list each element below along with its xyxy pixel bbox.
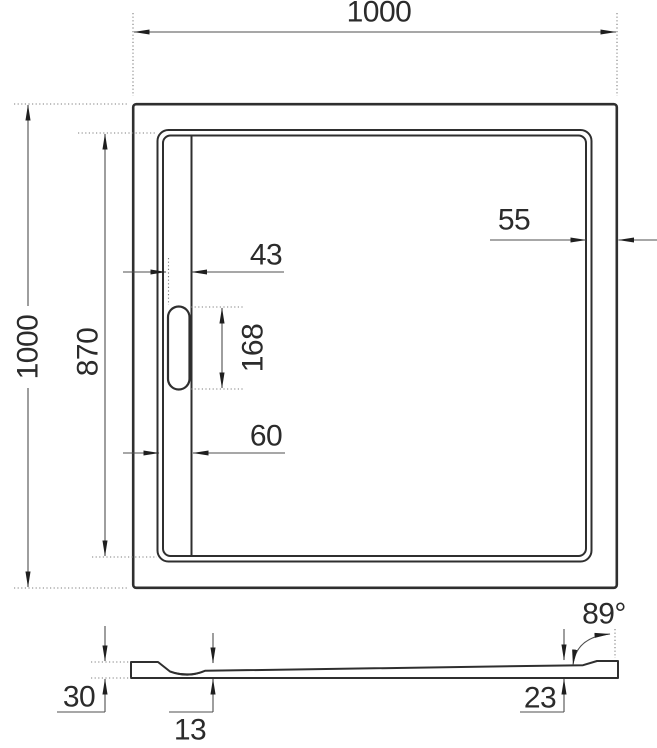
dim-slope-angle: 89° [573,598,626,666]
dim-label-rim-height: 30 [63,681,95,714]
drawing-page: 1000 1000 870 43 168 60 [0,0,657,748]
dim-label-base-thickness: 13 [174,714,206,747]
dim-label-channel-width: 60 [250,420,282,453]
dim-overall-depth: 1000 [12,104,129,588]
dim-overall-width: 1000 [133,0,617,96]
dim-label-overall-depth: 1000 [12,315,45,380]
dim-label-slope-angle: 89° [582,598,626,631]
tray-outer-edge [133,104,617,588]
dim-rim-height: 30 [57,626,131,714]
dim-label-slot-width: 43 [250,239,282,272]
shower-tray-technical-drawing: 1000 1000 870 43 168 60 [0,0,657,748]
dim-label-rim-width: 55 [498,204,530,237]
dim-label-basin-depth: 870 [72,328,105,377]
dim-base-thickness: 13 [169,633,213,747]
dim-label-overall-width: 1000 [347,0,412,29]
dim-label-edge-height: 23 [524,682,556,715]
dim-label-slot-length: 168 [237,324,270,373]
drain-slot [168,307,190,390]
profile-outline [131,661,618,678]
